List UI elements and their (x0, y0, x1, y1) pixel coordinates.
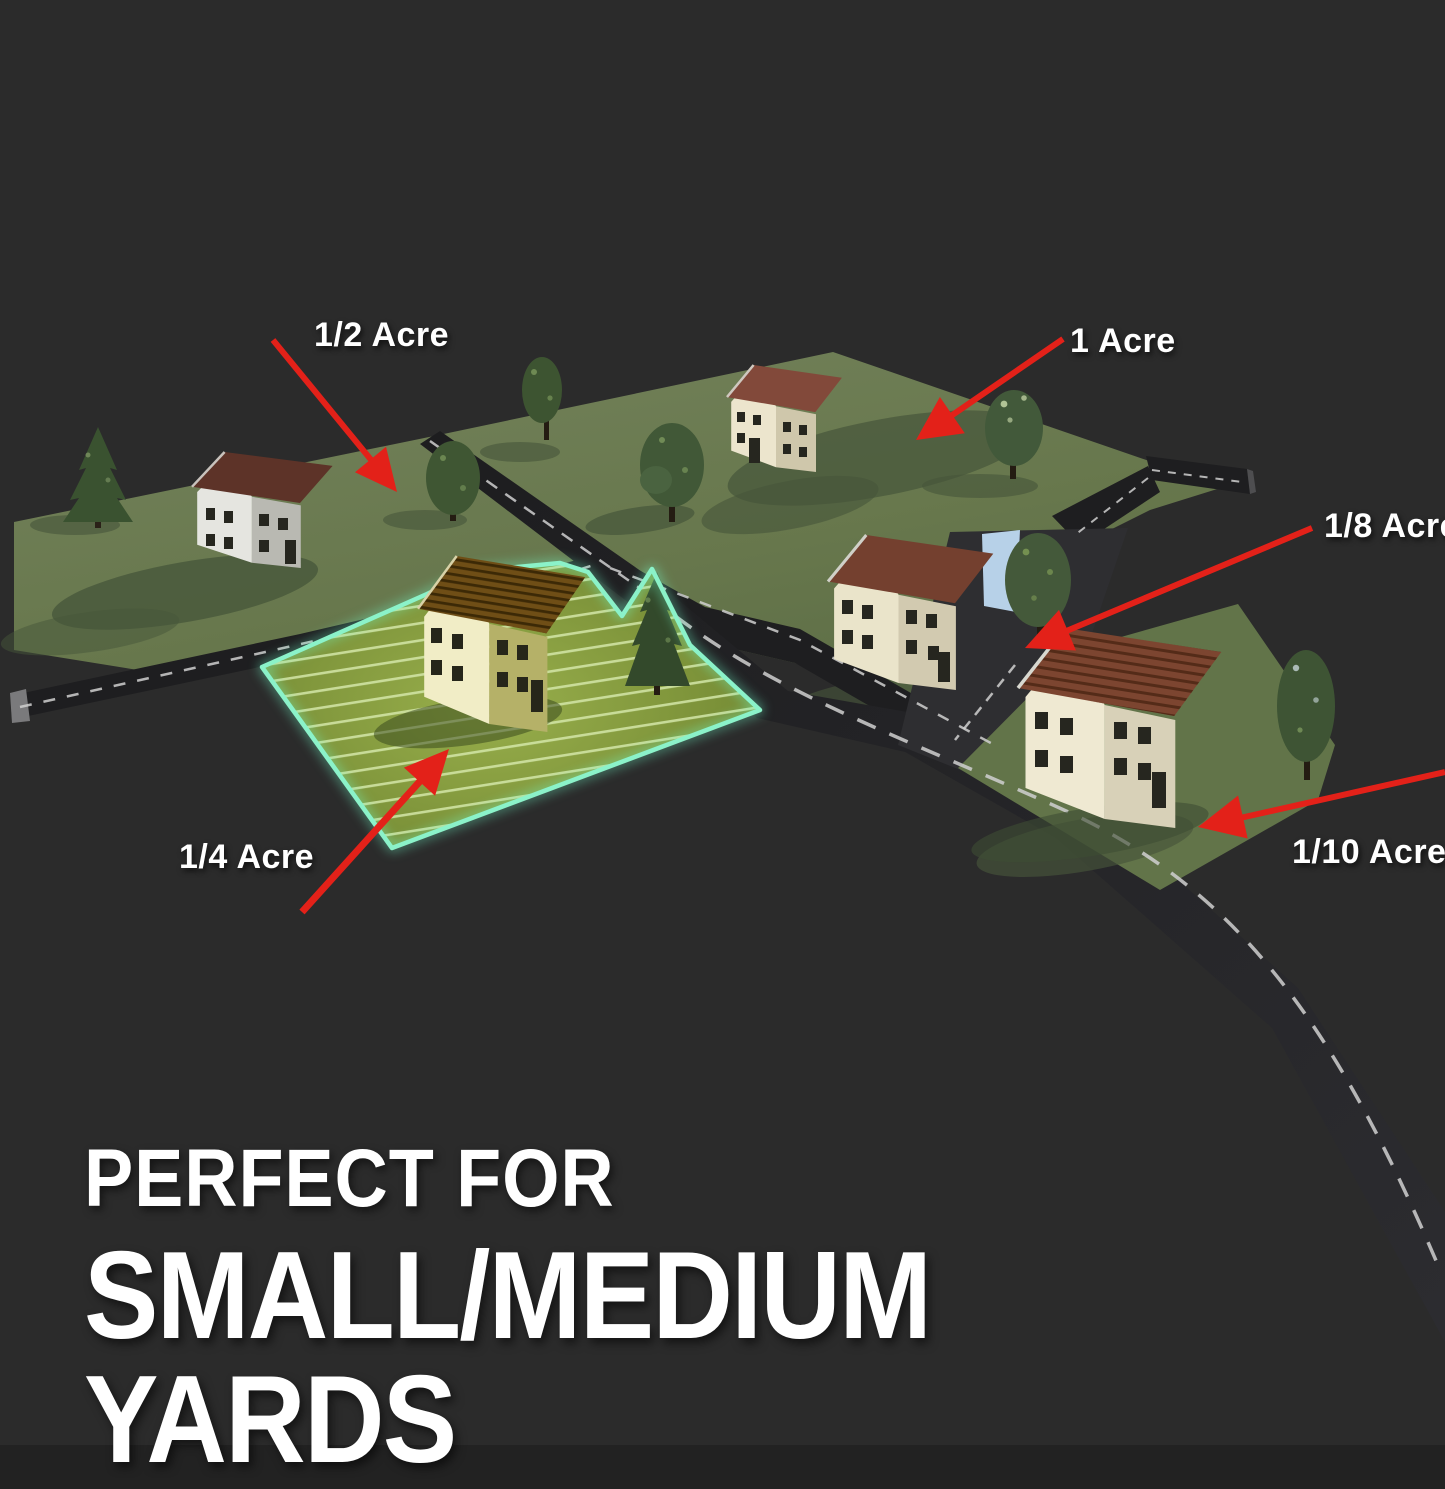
scene: 1/2 Acre 1 Acre 1/8 Acre 1/4 Acre 1/10 A… (0, 0, 1445, 1445)
headline: PERFECT FOR SMALL/MEDIUM YARDS (84, 1138, 1445, 1482)
lot-label-eighth-acre: 1/8 Acre (1324, 509, 1445, 545)
lot-label-quarter-acre: 1/4 Acre (179, 840, 314, 876)
headline-line1: PERFECT FOR (84, 1138, 1309, 1220)
house-one-acre-front-wall (776, 406, 816, 472)
lot-label-one-acre: 1 Acre (1070, 324, 1176, 360)
lot-label-tenth-acre: 1/10 Acre (1292, 835, 1445, 871)
lot-label-half-acre: 1/2 Acre (314, 318, 449, 354)
